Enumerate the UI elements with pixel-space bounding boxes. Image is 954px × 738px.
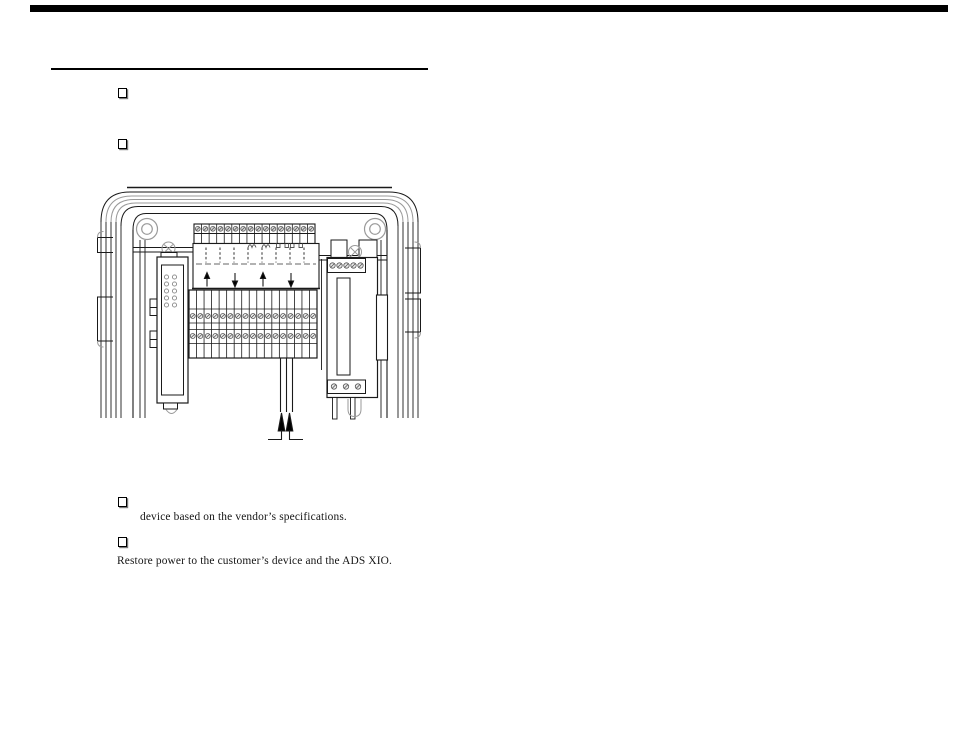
closing-instruction-text: Restore power to the customer’s device a…	[117, 555, 392, 569]
checkbox-item-2	[118, 139, 127, 149]
scan-artifact-bar	[30, 5, 948, 12]
wiring-panel	[192, 244, 320, 289]
checkbox-item-4	[118, 537, 127, 547]
mounting-hole-right	[365, 219, 386, 240]
checkbox-item-1	[118, 88, 127, 98]
right-power-module	[327, 240, 388, 419]
document-page: device based on the vendor’s specificati…	[0, 0, 954, 738]
checkbox-item-3	[118, 497, 127, 507]
terminal-strip-top	[194, 224, 315, 244]
wiring-diagram	[88, 180, 440, 446]
terminal-block	[189, 290, 317, 358]
section-divider-rule	[51, 68, 428, 70]
cable-entry-arrows	[268, 413, 303, 440]
checklist-continuation-text: device based on the vendor’s specificati…	[140, 511, 347, 525]
mounting-hole-left	[137, 219, 158, 240]
field-wires	[281, 358, 293, 412]
left-io-module	[150, 242, 188, 414]
